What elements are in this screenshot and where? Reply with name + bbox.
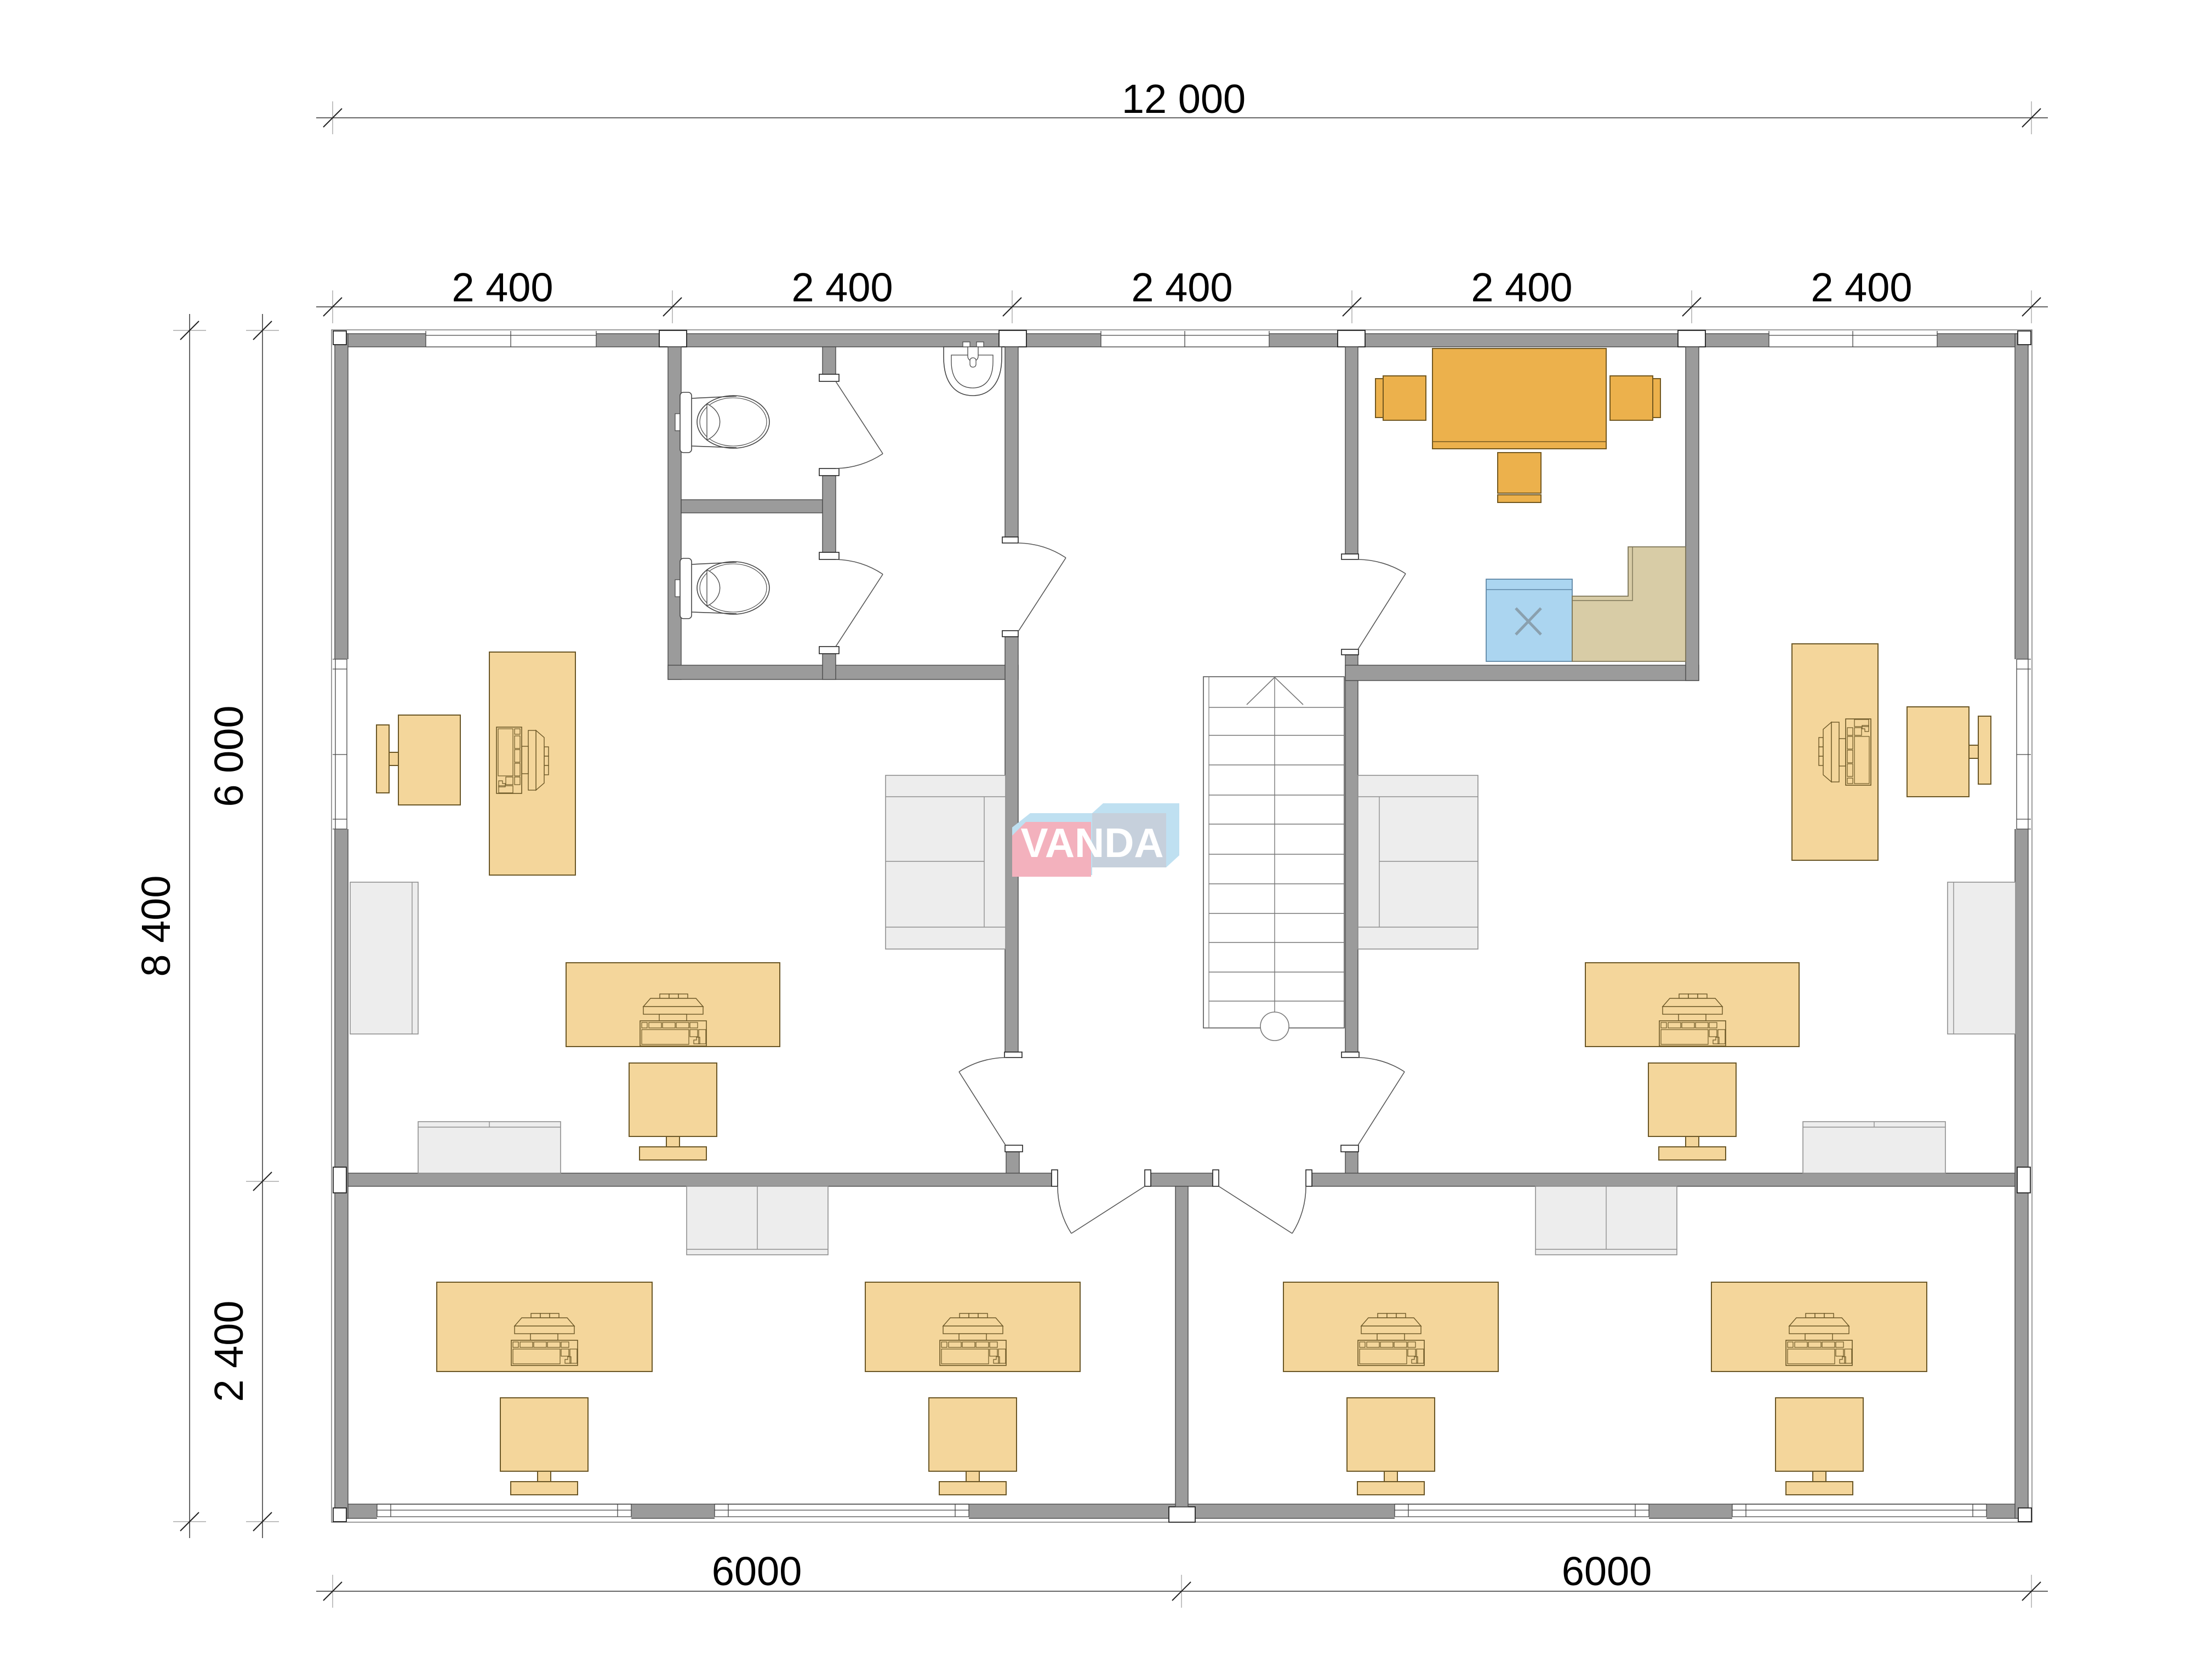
svg-text:12 000: 12 000 bbox=[1122, 76, 1246, 122]
svg-text:2 400: 2 400 bbox=[791, 265, 893, 310]
svg-text:2 400: 2 400 bbox=[1471, 265, 1572, 310]
svg-text:2 400: 2 400 bbox=[206, 1300, 252, 1402]
svg-text:6 000: 6 000 bbox=[206, 705, 252, 807]
svg-text:8 400: 8 400 bbox=[133, 875, 179, 976]
svg-text:2 400: 2 400 bbox=[1811, 265, 1912, 310]
svg-text:6000: 6000 bbox=[1562, 1548, 1652, 1594]
svg-text:6000: 6000 bbox=[712, 1548, 802, 1594]
svg-text:2 400: 2 400 bbox=[1131, 265, 1232, 310]
svg-text:VANDA: VANDA bbox=[1020, 820, 1163, 866]
svg-text:2 400: 2 400 bbox=[452, 265, 553, 310]
